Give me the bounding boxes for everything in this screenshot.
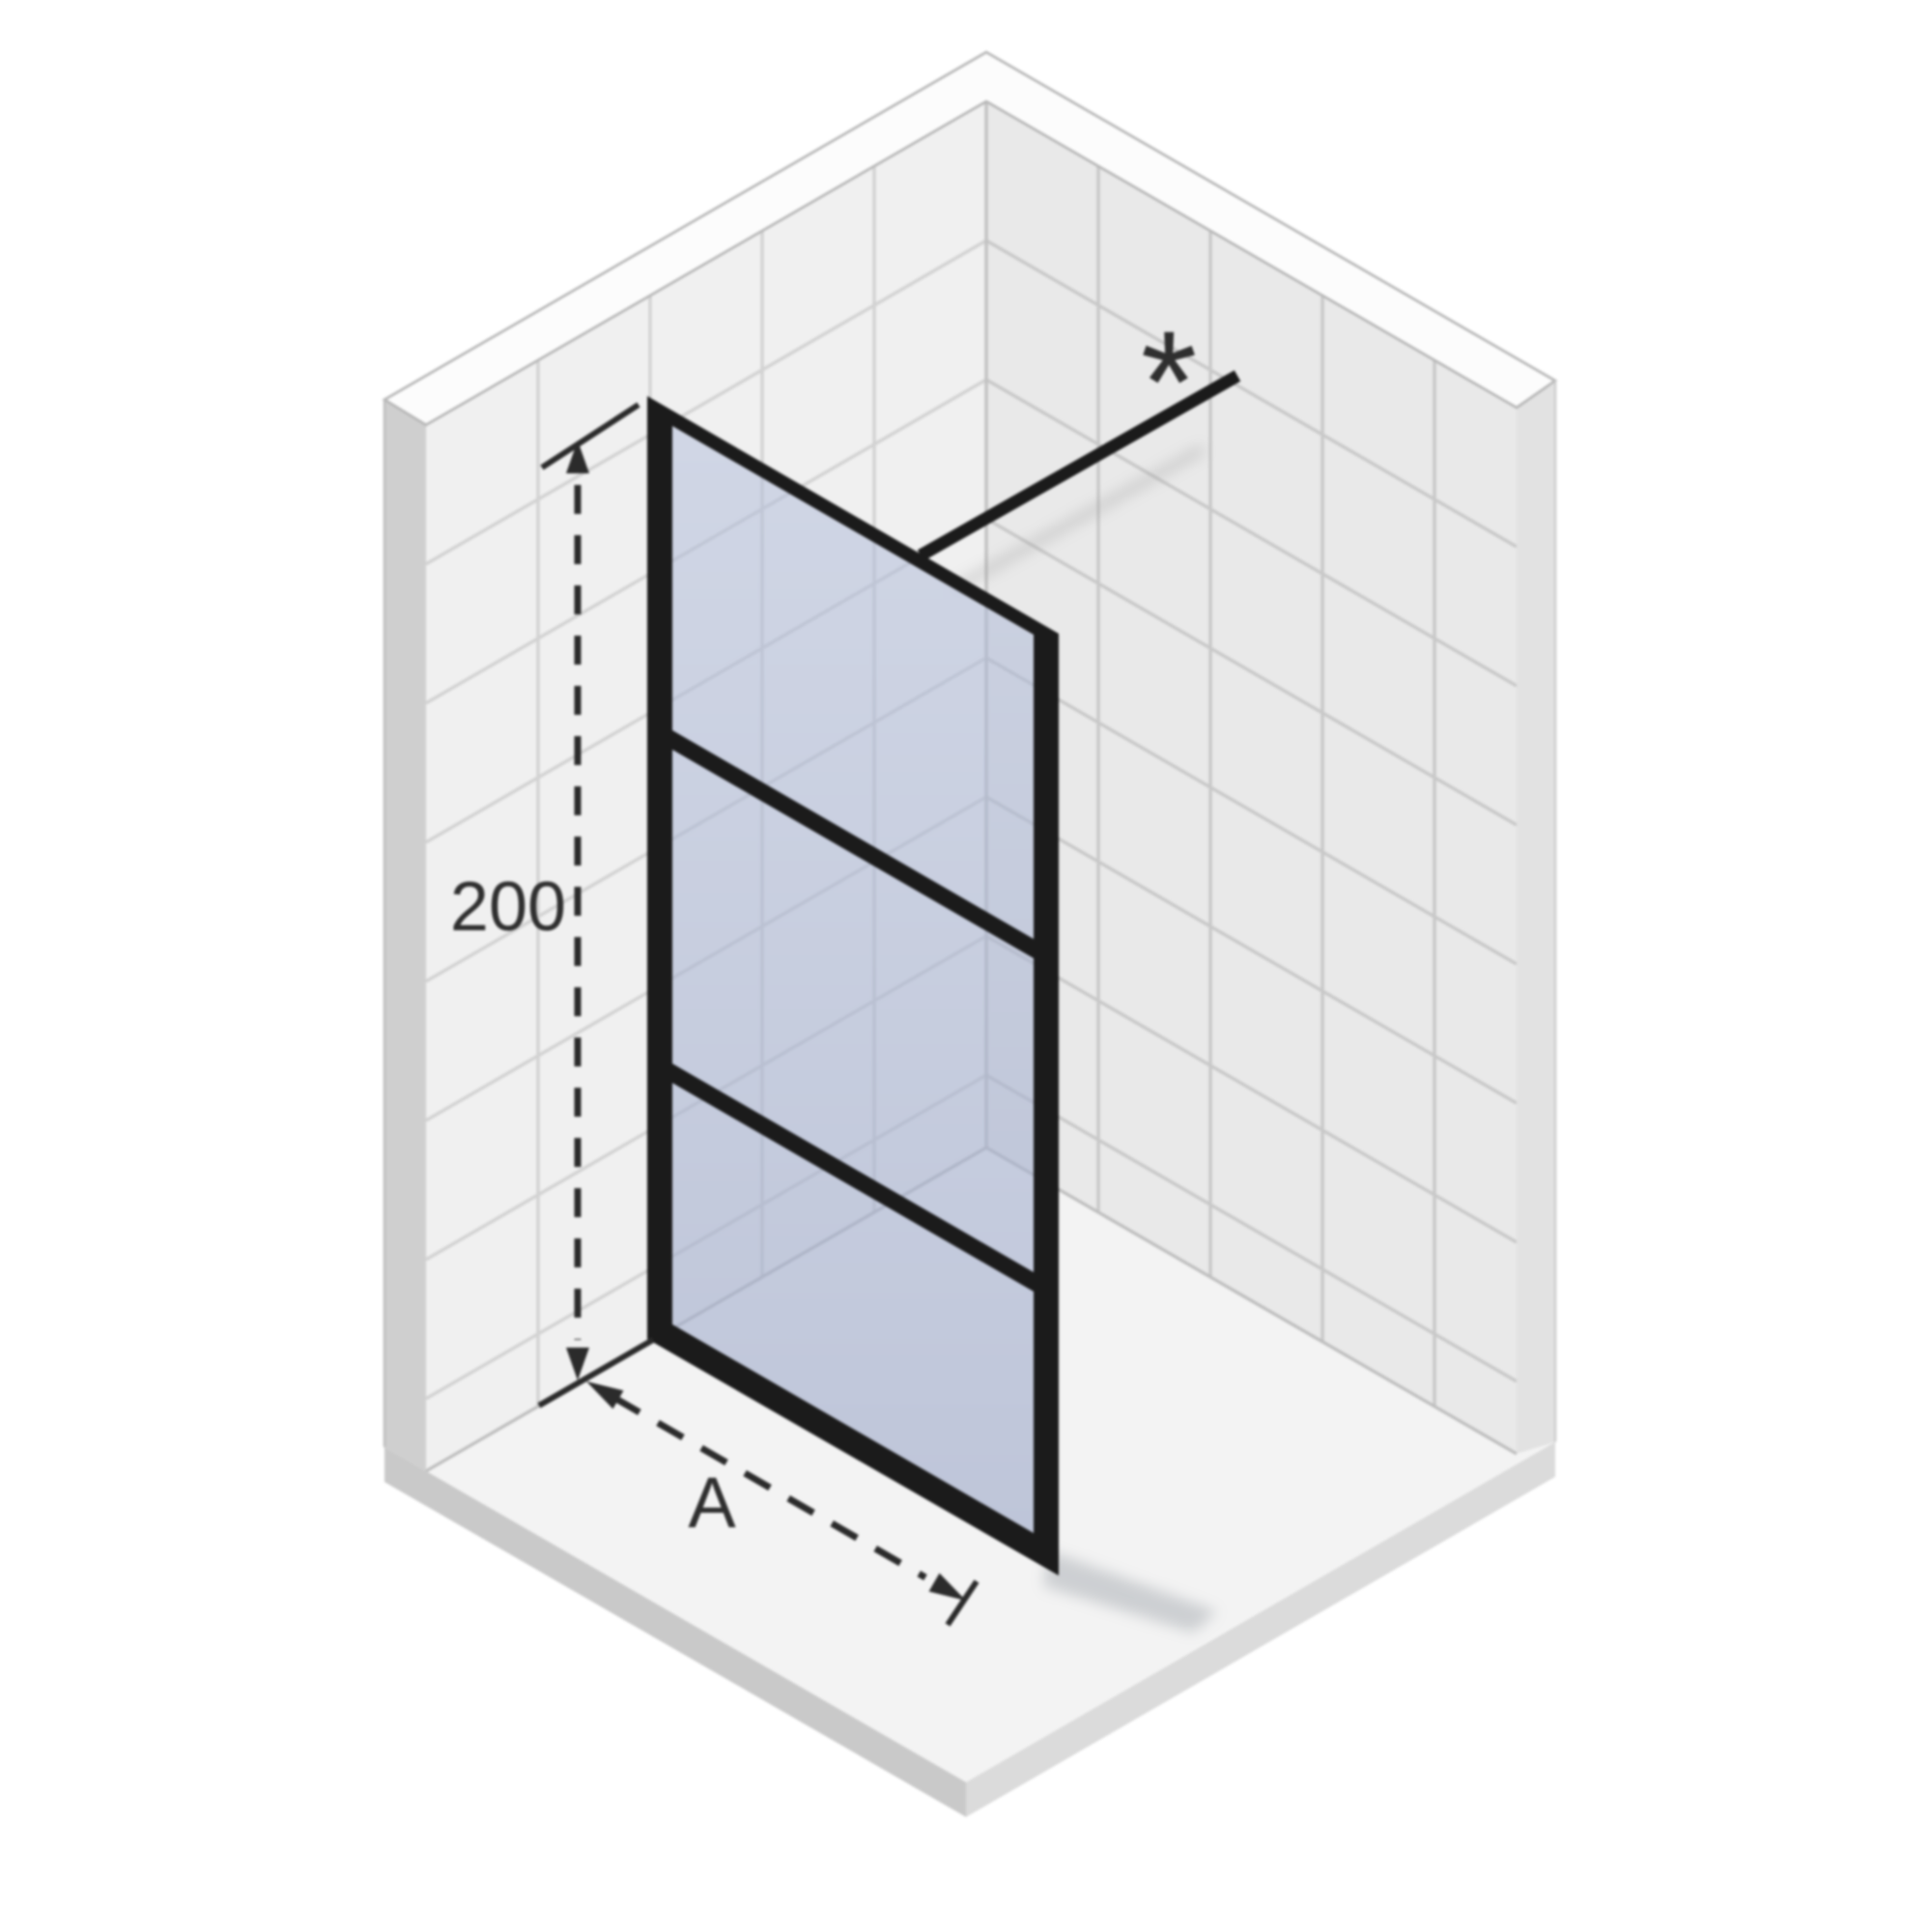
- svg-text:*: *: [1141, 300, 1197, 463]
- svg-text:A: A: [688, 1463, 736, 1543]
- svg-text:200: 200: [450, 868, 566, 946]
